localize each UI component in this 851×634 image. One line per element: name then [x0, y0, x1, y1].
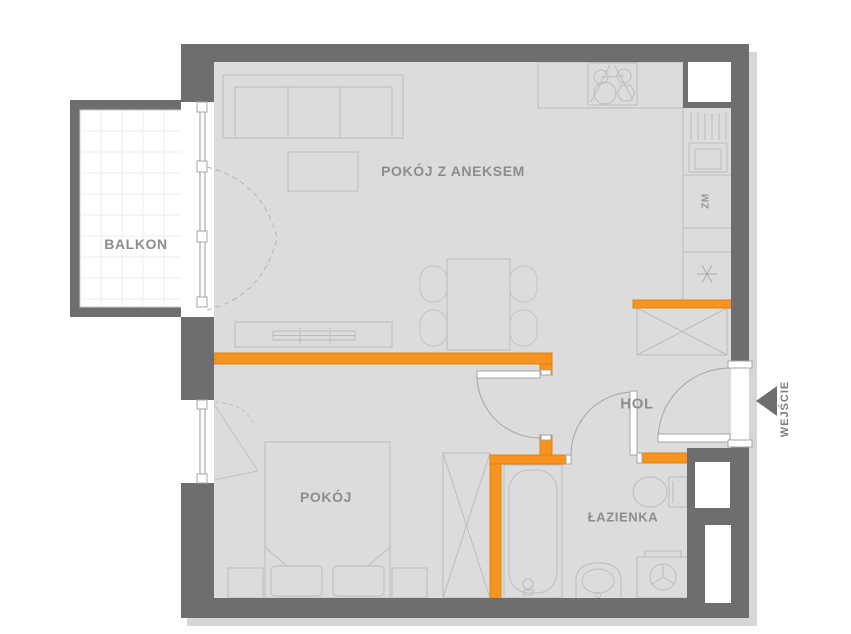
shaft-upper [695, 462, 730, 508]
label-bathroom: ŁAZIENKA [588, 510, 659, 525]
entrance-arrow-icon [756, 386, 777, 416]
balcony-structure [70, 100, 186, 317]
wall-kitchen-hall [633, 300, 731, 308]
balcony-floor [80, 110, 182, 307]
bedroom-window-opening [181, 400, 214, 483]
shaft-lower [705, 525, 731, 603]
wall-bottom [181, 598, 749, 618]
label-hall: HOL [620, 396, 653, 413]
label-bedroom: POKÓJ [300, 489, 352, 505]
bedroom-door-leaf [477, 371, 540, 378]
label-balcony: BALKON [104, 236, 167, 252]
wall-top [181, 44, 749, 62]
corner-niche [688, 62, 731, 102]
label-living-room: POKÓJ Z ANEKSEM [381, 163, 525, 179]
label-dishwasher: ZM [701, 193, 712, 208]
floor-plan-drawing [0, 0, 851, 634]
entrance-opening [731, 367, 749, 440]
entrance-door-leaf [658, 434, 730, 442]
balcony-door-opening [181, 102, 214, 317]
dining-table [447, 259, 510, 350]
floor-plan: POKÓJ Z ANEKSEM BALKON POKÓJ HOL ŁAZIENK… [0, 0, 851, 634]
wall-bathroom-left [490, 464, 501, 598]
wall-living-bedroom [214, 353, 552, 364]
wall-bathroom-top [490, 455, 570, 464]
label-entrance: WEJŚCIE [779, 381, 791, 438]
wall-bathroom-top-right [637, 453, 688, 463]
